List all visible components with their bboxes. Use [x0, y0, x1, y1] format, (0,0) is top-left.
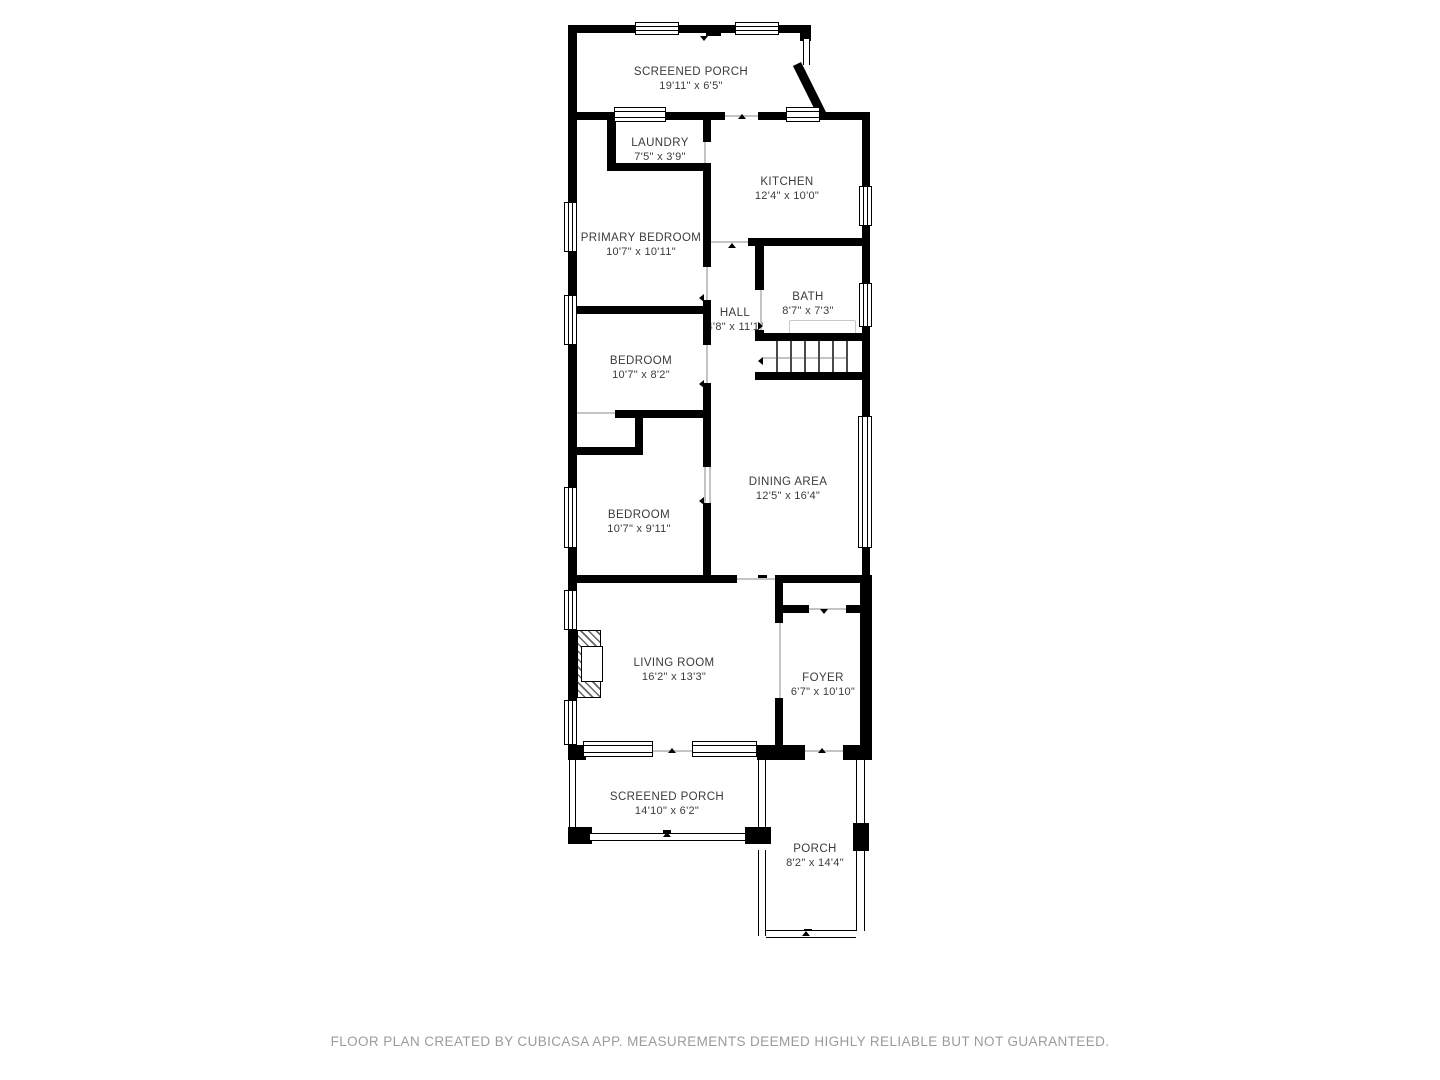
- threshold-line: [709, 467, 711, 503]
- wall-segment: [755, 372, 865, 380]
- window-pane: [614, 111, 666, 118]
- wall-segment: [862, 226, 870, 283]
- door-direction-marker: [663, 832, 671, 837]
- stair-tread: [776, 341, 778, 372]
- room-name: BATH: [782, 291, 833, 304]
- wall-segment: [568, 252, 577, 295]
- porch-rail: [758, 760, 766, 827]
- room-label-porch: PORCH 8'2" x 14'4": [786, 843, 844, 870]
- wall-segment: [745, 827, 771, 844]
- wall-segment: [703, 417, 711, 467]
- porch-rail: [766, 930, 856, 938]
- room-label-screened-porch-top: SCREENED PORCH 19'11" x 6'5": [634, 66, 748, 93]
- room-dims: 12'5" x 16'4": [749, 490, 828, 503]
- threshold-line: [737, 578, 775, 580]
- room-name: BEDROOM: [610, 355, 672, 368]
- floor-plan: SCREENED PORCH 19'11" x 6'5" LAUNDRY 7'5…: [0, 0, 1440, 1080]
- window-pane: [568, 295, 573, 345]
- room-dims: 10'7" x 10'11": [581, 246, 702, 259]
- room-dims: 19'11" x 6'5": [634, 80, 748, 93]
- wall-segment: [755, 333, 865, 341]
- wall-segment: [577, 575, 737, 583]
- window-pane: [568, 700, 573, 745]
- room-dims: 16'2" x 13'3": [633, 671, 714, 684]
- room-label-dining-area: DINING AREA 12'5" x 16'4": [749, 476, 828, 503]
- window-icon: [564, 487, 577, 548]
- window-pane: [583, 745, 653, 753]
- window-pane: [568, 487, 573, 548]
- porch-rail: [758, 850, 766, 936]
- threshold-line: [706, 267, 708, 300]
- window-pane: [692, 745, 757, 753]
- fireplace-firebox: [581, 646, 603, 682]
- window-icon: [564, 590, 577, 630]
- wall-segment: [666, 112, 725, 120]
- window-icon: [635, 22, 679, 35]
- wall-segment: [568, 25, 577, 120]
- room-name: SCREENED PORCH: [610, 791, 724, 804]
- wall-segment: [568, 112, 616, 120]
- room-dims: 10'7" x 9'11": [607, 523, 670, 536]
- room-name: HALL: [707, 307, 764, 320]
- window-pane: [568, 590, 573, 630]
- room-name: PORCH: [786, 843, 844, 856]
- door-direction-marker: [700, 36, 708, 41]
- room-name: DINING AREA: [749, 476, 828, 489]
- door-direction-marker: [699, 497, 704, 505]
- wall-segment: [775, 575, 783, 623]
- room-name: SCREENED PORCH: [634, 66, 748, 79]
- room-label-screened-porch-bottom: SCREENED PORCH 14'10" x 6'2": [610, 791, 724, 818]
- wall-segment: [615, 410, 711, 418]
- window-pane: [568, 202, 573, 252]
- door-direction-marker: [802, 931, 810, 936]
- window-icon: [786, 107, 820, 122]
- room-dims: 12'4" x 10'0": [755, 190, 819, 203]
- threshold-line: [704, 467, 706, 503]
- wall-segment: [748, 238, 870, 246]
- wall-segment: [703, 163, 711, 267]
- wall-segment: [703, 112, 711, 142]
- room-label-living-room: LIVING ROOM 16'2" x 13'3": [633, 657, 714, 684]
- window-icon: [564, 295, 577, 345]
- room-dims: 8'2" x 14'4": [786, 857, 844, 870]
- wall-segment: [783, 575, 862, 583]
- wall-segment: [862, 112, 870, 188]
- wall-segment: [577, 306, 711, 314]
- wall-segment: [846, 605, 862, 613]
- wall-segment: [568, 120, 577, 202]
- room-name: BEDROOM: [607, 509, 670, 522]
- wall-segment: [860, 575, 872, 755]
- window-icon: [859, 186, 872, 226]
- room-name: LAUNDRY: [631, 137, 689, 150]
- door-direction-marker: [758, 357, 763, 365]
- door-direction-marker: [668, 748, 676, 753]
- wall-segment: [783, 605, 809, 613]
- room-label-primary-bedroom: PRIMARY BEDROOM 10'7" x 10'11": [581, 232, 702, 259]
- door-direction-marker: [699, 380, 704, 388]
- wall-segment: [703, 503, 711, 575]
- window-pane: [863, 186, 868, 226]
- room-dims: 8'7" x 7'3": [782, 305, 833, 318]
- room-label-laundry: LAUNDRY 7'5" x 3'9": [631, 137, 689, 164]
- wall-segment: [706, 25, 721, 36]
- door-direction-marker: [738, 114, 746, 119]
- threshold-line: [706, 345, 708, 383]
- footer-disclaimer: FLOOR PLAN CREATED BY CUBICASA APP. MEAS…: [0, 1034, 1440, 1049]
- door-direction-marker: [820, 609, 828, 614]
- door-direction-marker: [818, 748, 826, 753]
- stair-tread: [832, 341, 834, 372]
- window-icon: [564, 202, 577, 252]
- window-pane: [786, 111, 820, 118]
- wall-segment: [568, 410, 577, 487]
- wall-segment: [757, 745, 805, 760]
- threshold-line: [779, 623, 781, 698]
- wall-segment: [568, 548, 577, 590]
- wall-segment: [568, 827, 592, 844]
- room-dims: 14'10" x 6'2": [610, 805, 724, 818]
- porch-rail: [569, 760, 576, 827]
- window-pane: [635, 26, 679, 31]
- threshold-line: [704, 142, 706, 163]
- door-direction-marker: [699, 294, 704, 302]
- door-direction-marker: [758, 322, 763, 330]
- stair-tread: [790, 341, 792, 372]
- window-pane: [735, 26, 779, 31]
- window-icon: [858, 416, 872, 548]
- room-label-bedroom-3: BEDROOM 10'7" x 9'11": [607, 509, 670, 536]
- window-icon: [735, 22, 779, 35]
- room-name: LIVING ROOM: [633, 657, 714, 670]
- door-direction-marker: [728, 243, 736, 248]
- window-icon: [859, 283, 872, 327]
- threshold-line: [577, 412, 615, 414]
- room-dims: 10'7" x 8'2": [610, 369, 672, 382]
- stair-tread: [804, 341, 806, 372]
- window-pane: [863, 283, 868, 327]
- wall-segment: [843, 745, 872, 760]
- porch-rail: [803, 39, 810, 65]
- room-label-kitchen: KITCHEN 12'4" x 10'0": [755, 176, 819, 203]
- wall-segment: [853, 823, 869, 851]
- stair-tread: [846, 341, 848, 372]
- wall-segment: [758, 112, 786, 120]
- window-pane: [862, 416, 868, 548]
- wall-segment: [568, 345, 577, 410]
- floor-plan-page: SCREENED PORCH 19'11" x 6'5" LAUNDRY 7'5…: [0, 0, 1440, 1080]
- wall-segment: [568, 630, 577, 700]
- room-name: PRIMARY BEDROOM: [581, 232, 702, 245]
- window-icon: [583, 741, 653, 757]
- window-icon: [564, 700, 577, 745]
- room-name: KITCHEN: [755, 176, 819, 189]
- porch-rail: [856, 851, 865, 931]
- stair-tread: [818, 341, 820, 372]
- wall-segment: [862, 327, 870, 418]
- porch-rail: [856, 760, 865, 823]
- room-dims: 6'7" x 10'10": [791, 686, 855, 699]
- window-icon: [692, 741, 757, 757]
- room-label-bedroom-2: BEDROOM 10'7" x 8'2": [610, 355, 672, 382]
- room-label-bath: BATH 8'7" x 7'3": [782, 291, 833, 318]
- wall-segment: [755, 246, 764, 290]
- window-icon: [614, 107, 666, 122]
- wall-segment: [607, 163, 708, 171]
- room-label-foyer: FOYER 6'7" x 10'10": [791, 672, 855, 699]
- room-name: FOYER: [791, 672, 855, 685]
- wall-segment: [577, 447, 643, 455]
